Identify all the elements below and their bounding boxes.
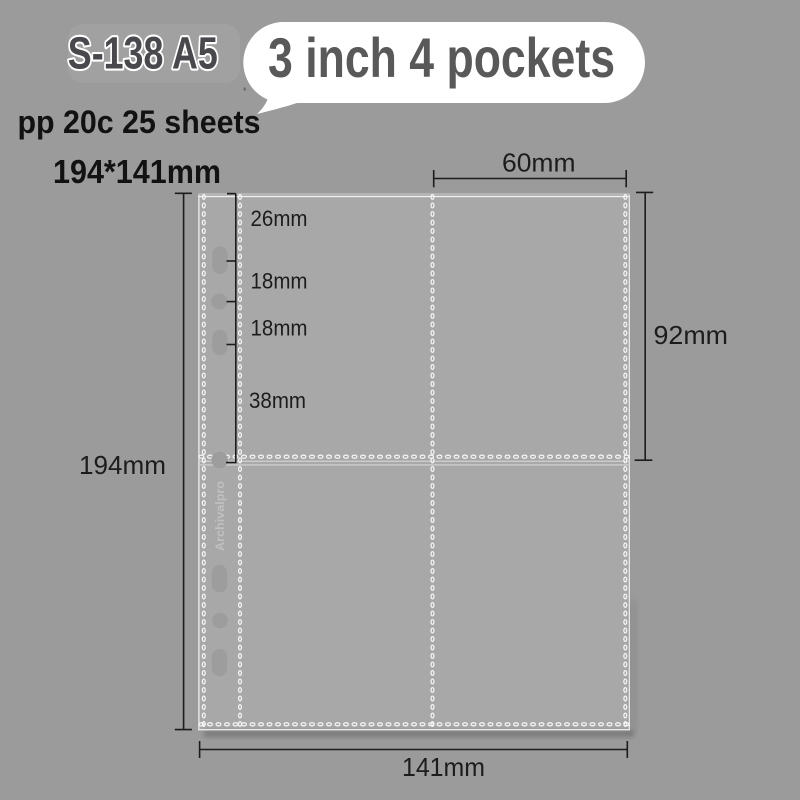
svg-text:3 inch 4 pockets: 3 inch 4 pockets xyxy=(268,26,615,89)
svg-text:141mm: 141mm xyxy=(402,752,485,782)
svg-text:S-138 A5: S-138 A5 xyxy=(68,28,218,79)
svg-text:60mm: 60mm xyxy=(502,147,576,177)
svg-text:194*141mm: 194*141mm xyxy=(53,153,221,190)
svg-text:pp 20c 25 sheets: pp 20c 25 sheets xyxy=(18,104,261,140)
svg-text:194mm: 194mm xyxy=(79,450,166,480)
svg-text:18mm: 18mm xyxy=(251,316,308,341)
svg-text:38mm: 38mm xyxy=(249,388,306,413)
svg-text:18mm: 18mm xyxy=(251,269,308,294)
svg-text:26mm: 26mm xyxy=(251,206,308,231)
svg-text:Archivalpro: Archivalpro xyxy=(213,481,227,551)
svg-text:92mm: 92mm xyxy=(654,320,729,350)
